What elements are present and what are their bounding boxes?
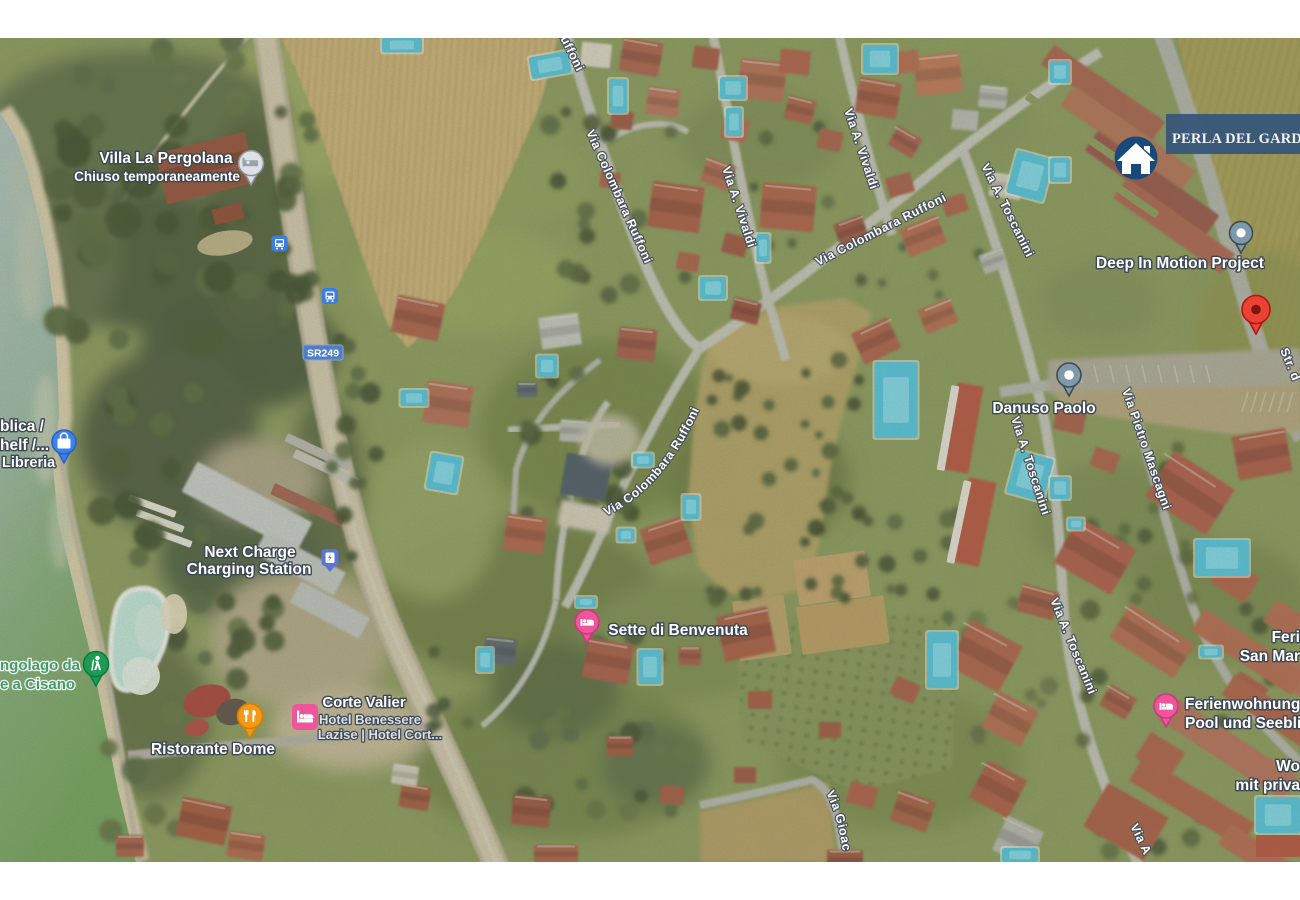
svg-text:Pool und Seebli: Pool und Seebli bbox=[1185, 715, 1300, 732]
svg-text:Libreria: Libreria bbox=[2, 455, 56, 471]
svg-text:PERLA DEL GARDA: PERLA DEL GARDA bbox=[1172, 131, 1300, 147]
svg-text:Corte Valier: Corte Valier bbox=[322, 694, 406, 711]
svg-text:Danuso Paolo: Danuso Paolo bbox=[992, 400, 1095, 417]
svg-text:SR249: SR249 bbox=[307, 348, 339, 360]
svg-text:Ferienwohnung: Ferienwohnung bbox=[1185, 696, 1300, 713]
svg-text:Wo: Wo bbox=[1276, 758, 1300, 775]
svg-text:Next Charge: Next Charge bbox=[204, 544, 296, 561]
svg-text:ngolago da: ngolago da bbox=[0, 657, 81, 674]
svg-text:blica /: blica / bbox=[0, 418, 45, 435]
svg-text:San Mar: San Mar bbox=[1240, 648, 1300, 665]
svg-text:Lazise | Hotel Cort...: Lazise | Hotel Cort... bbox=[318, 727, 442, 742]
svg-text:Villa La Pergolana: Villa La Pergolana bbox=[99, 150, 233, 167]
svg-text:Chiuso temporaneamente: Chiuso temporaneamente bbox=[74, 169, 240, 184]
svg-text:Sette di Benvenuta: Sette di Benvenuta bbox=[608, 622, 748, 639]
svg-text:mit priva: mit priva bbox=[1235, 777, 1300, 794]
svg-text:Feri: Feri bbox=[1272, 629, 1300, 646]
svg-text:helf /...: helf /... bbox=[0, 437, 49, 454]
svg-text:Ristorante Dome: Ristorante Dome bbox=[151, 741, 275, 758]
svg-text:Charging Station: Charging Station bbox=[187, 561, 312, 578]
svg-text:Deep In Motion Project: Deep In Motion Project bbox=[1096, 255, 1264, 272]
svg-text:e a Cisano: e a Cisano bbox=[0, 676, 75, 693]
svg-text:Hotel Benessere: Hotel Benessere bbox=[319, 712, 421, 727]
